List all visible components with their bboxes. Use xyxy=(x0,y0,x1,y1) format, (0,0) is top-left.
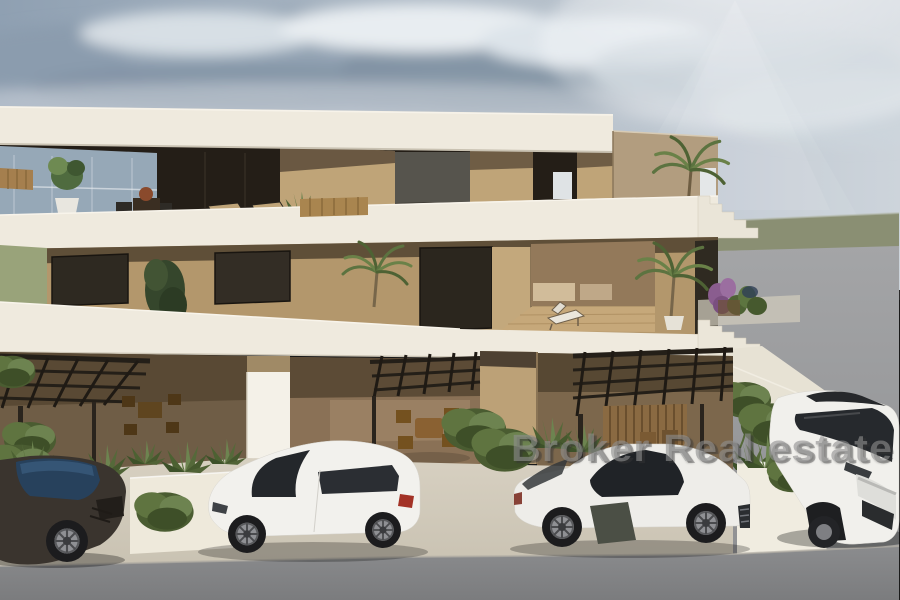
watermark: Broker Real estate Broker Real estate xyxy=(511,428,896,472)
window xyxy=(420,247,492,331)
watermark-text: Broker Real estate xyxy=(511,428,893,470)
window xyxy=(395,152,470,203)
penthouse-block xyxy=(613,131,728,206)
door xyxy=(553,172,572,199)
window xyxy=(215,251,290,304)
window xyxy=(52,254,128,306)
side-blade xyxy=(590,502,636,544)
taillight xyxy=(398,494,414,508)
wooden-planter xyxy=(300,197,368,217)
building xyxy=(0,106,758,360)
render-photo: Broker Real estate Broker Real estate xyxy=(0,0,900,600)
taillight xyxy=(514,492,522,505)
